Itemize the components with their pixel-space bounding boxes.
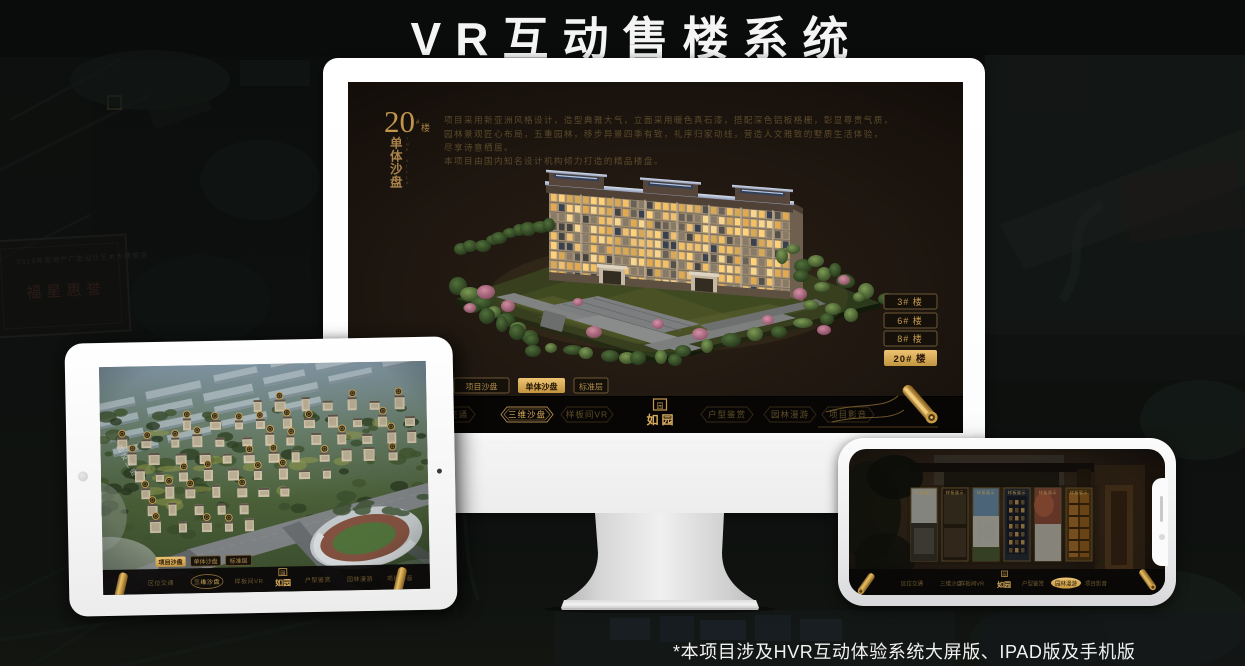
svg-text:如 园: 如 园: [646, 412, 673, 427]
svg-text:样板间VR: 样板间VR: [960, 580, 984, 588]
svg-text:项目采用新亚洲风格设计，造型典雅大气，立面采用暖色真石漆，搭: 项目采用新亚洲风格设计，造型典雅大气，立面采用暖色真石漆，搭配深色铝板格栅，彰显…: [444, 114, 894, 125]
svg-text:三维沙盘: 三维沙盘: [508, 410, 546, 420]
svg-text:园: 园: [280, 571, 285, 577]
svg-text:体: 体: [390, 149, 403, 164]
svg-text:20: 20: [384, 104, 415, 139]
svg-text:园林漫游: 园林漫游: [1055, 580, 1078, 588]
svg-text:单体沙盘: 单体沙盘: [526, 382, 558, 392]
svg-text:如园: 如园: [275, 577, 291, 587]
svg-text:园: 园: [657, 402, 664, 410]
svg-text:如园: 如园: [997, 580, 1011, 589]
svg-text:单: 单: [390, 136, 403, 151]
svg-text:8# 楼: 8# 楼: [897, 333, 923, 344]
svg-text:L: L: [406, 170, 408, 174]
svg-text:区位交通: 区位交通: [901, 580, 924, 588]
svg-text:6# 楼: 6# 楼: [897, 315, 923, 326]
svg-text:楼: 楼: [421, 122, 430, 133]
svg-text:本项目由国内知名设计机构倾力打造的精品楼盘。: 本项目由国内知名设计机构倾力打造的精品楼盘。: [444, 155, 664, 166]
svg-text:园: 园: [1003, 571, 1007, 577]
svg-text:沙: 沙: [390, 163, 403, 177]
svg-text:盘: 盘: [390, 175, 403, 190]
svg-text:项目影音: 项目影音: [1085, 580, 1108, 588]
svg-text:园林景观匠心布局，五重园林，移步异景四季有致，礼序归家动线，: 园林景观匠心布局，五重园林，移步异景四季有致，礼序归家动线，营造人文雅致的墅质生…: [444, 128, 884, 139]
svg-text:L: L: [406, 176, 408, 180]
svg-text:户型鉴赏: 户型鉴赏: [1022, 580, 1045, 588]
svg-text:标准层: 标准层: [579, 382, 603, 392]
svg-text:H: H: [406, 143, 409, 147]
svg-text:20# 楼: 20# 楼: [894, 353, 927, 365]
svg-text:I: I: [406, 165, 407, 169]
svg-text:样板间VR: 样板间VR: [566, 410, 608, 420]
svg-text:园林漫游: 园林漫游: [771, 410, 809, 420]
svg-text:项目沙盘: 项目沙盘: [466, 382, 498, 392]
svg-text:户型鉴赏: 户型鉴赏: [708, 410, 746, 420]
svg-text:3# 楼: 3# 楼: [897, 296, 923, 307]
svg-text:尽享诗意栖居。: 尽享诗意栖居。: [444, 142, 514, 153]
